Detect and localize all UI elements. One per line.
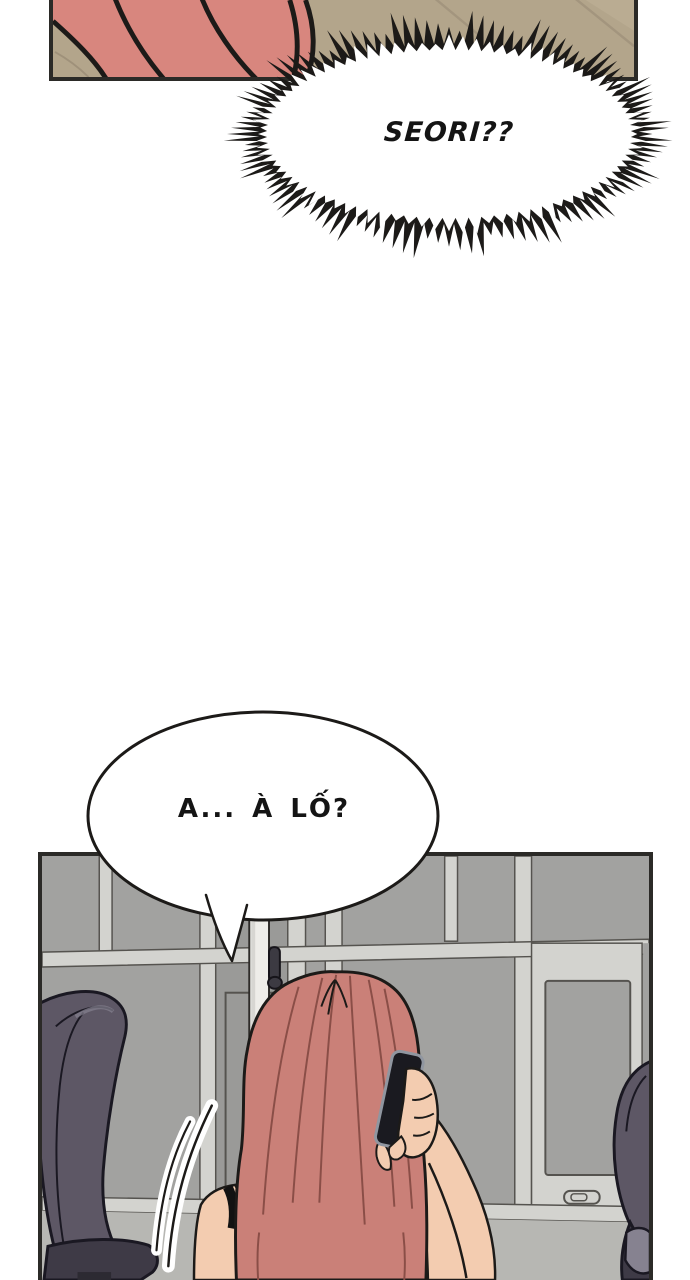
window-handle: [564, 1191, 600, 1204]
speech-bubble-text: A... À LỐ?: [99, 794, 429, 824]
speech-bubble: [60, 695, 480, 985]
comic-page: SEORI?? A... À LỐ?: [0, 0, 690, 1280]
chair-armrest: [625, 1228, 649, 1273]
speech-bubble-tail: [206, 895, 247, 961]
shout-bubble-text: SEORI??: [258, 117, 640, 148]
